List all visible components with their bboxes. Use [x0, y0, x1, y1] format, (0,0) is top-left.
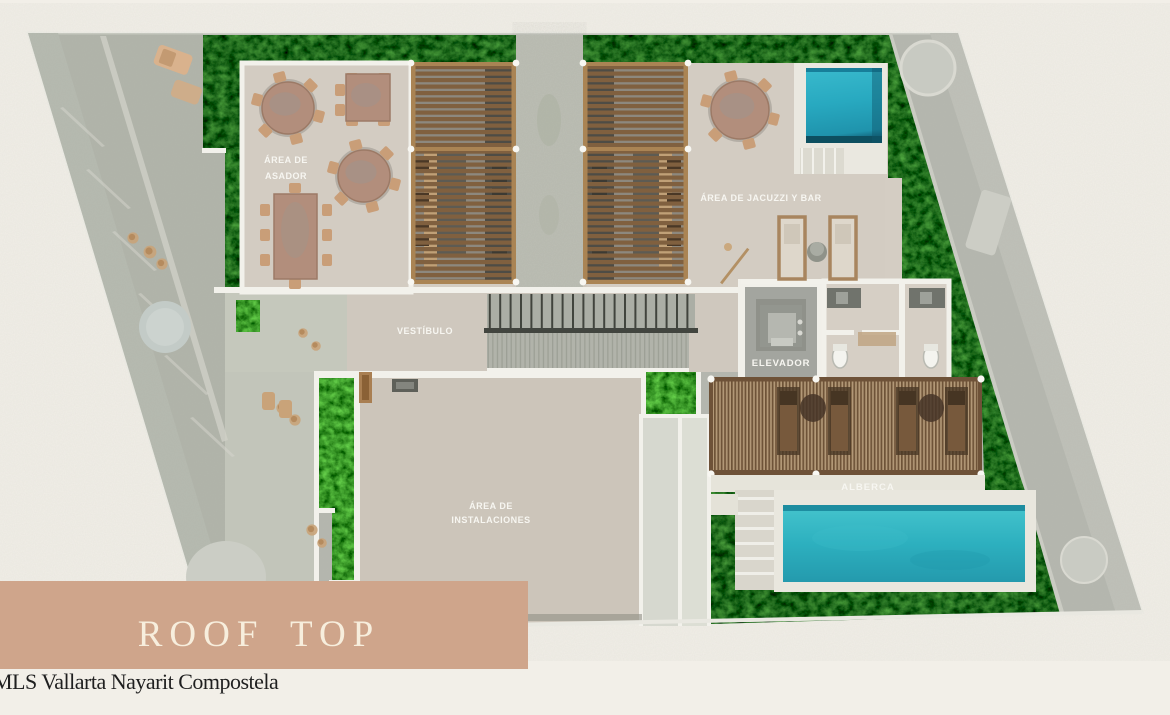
svg-text:ROOF TOP: ROOF TOP [138, 614, 381, 655]
svg-text:ALBERCA: ALBERCA [841, 482, 894, 493]
svg-text:ELEVADOR: ELEVADOR [752, 358, 810, 369]
svg-text:MLS Vallarta Nayarit Compostel: MLS Vallarta Nayarit Compostela [0, 669, 279, 694]
svg-text:ÁREA DE: ÁREA DE [469, 501, 513, 511]
svg-text:VESTÍBULO: VESTÍBULO [397, 326, 453, 336]
svg-text:ASADOR: ASADOR [265, 171, 307, 181]
svg-text:ÁREA DE: ÁREA DE [264, 155, 308, 165]
svg-text:INSTALACIONES: INSTALACIONES [451, 515, 530, 525]
svg-text:ÁREA DE JACUZZI Y BAR: ÁREA DE JACUZZI Y BAR [700, 193, 821, 203]
